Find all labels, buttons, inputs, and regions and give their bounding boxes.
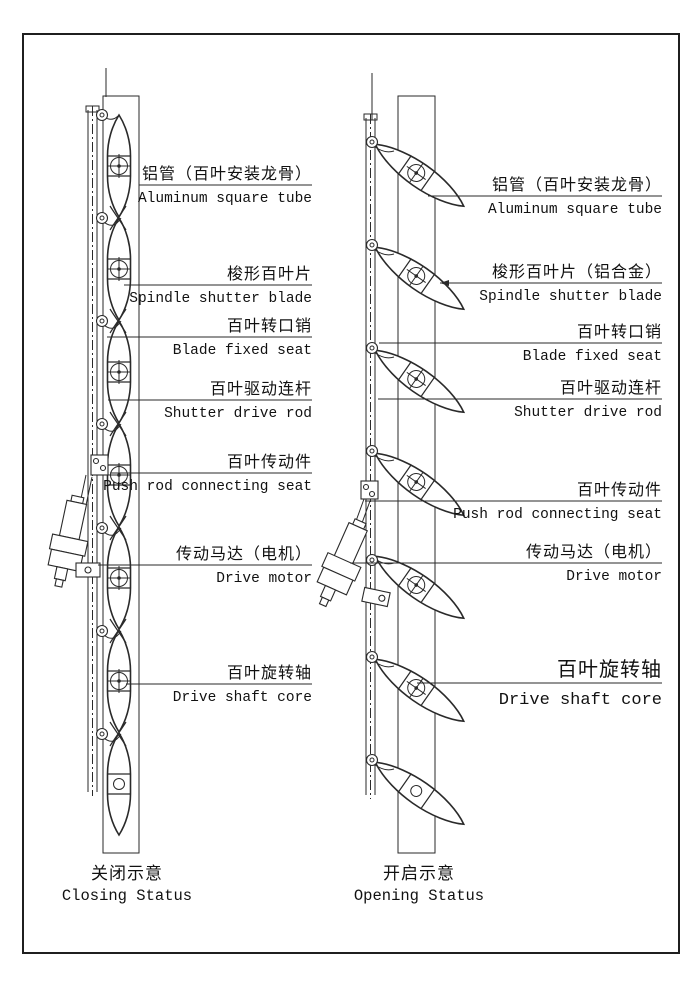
label-aluminum-tube-en: Aluminum square tube bbox=[138, 191, 312, 207]
opening-status-caption-en: Opening Status bbox=[354, 887, 484, 905]
label-drive-motor-en: Drive motor bbox=[216, 571, 312, 587]
label-drive-motor-en: Drive motor bbox=[566, 569, 662, 585]
label-blade-fixed-seat-zh: 百叶转口销 bbox=[227, 316, 312, 335]
spindle-blade bbox=[368, 546, 470, 628]
label-connecting-seat-zh: 百叶传动件 bbox=[227, 452, 312, 471]
label-spindle-blade-zh: 梭形百叶片（铝合金） bbox=[492, 262, 662, 281]
label-spindle-blade-en: Spindle shutter blade bbox=[479, 289, 662, 305]
opening-diagram bbox=[308, 73, 471, 853]
open-blades bbox=[368, 134, 470, 834]
closing-status-caption-zh: 关闭示意 bbox=[91, 864, 163, 884]
label-drive-rod-zh: 百叶驱动连杆 bbox=[210, 379, 312, 398]
shutter-drive-rod bbox=[86, 106, 99, 796]
spindle-blade bbox=[107, 321, 131, 423]
drive-motor-assembly bbox=[42, 455, 108, 590]
label-blade-fixed-seat-en: Blade fixed seat bbox=[523, 349, 662, 365]
blade-pivots bbox=[367, 137, 378, 766]
label-drive-rod-zh: 百叶驱动连杆 bbox=[560, 378, 662, 397]
label-drive-rod-en: Shutter drive rod bbox=[164, 406, 312, 422]
spindle-blade bbox=[107, 424, 131, 526]
spindle-blade bbox=[107, 115, 131, 217]
right-labels: 铝管（百叶安装龙骨） Aluminum square tube 梭形百叶片（铝合… bbox=[453, 175, 662, 710]
label-aluminum-tube-zh: 铝管（百叶安装龙骨） bbox=[492, 175, 662, 194]
spindle-blade bbox=[368, 649, 470, 731]
opening-status-caption-zh: 开启示意 bbox=[383, 864, 455, 884]
left-labels: 铝管（百叶安装龙骨） Aluminum square tube 梭形百叶片 Sp… bbox=[103, 164, 312, 706]
shutter-mechanism-diagram: 铝管（百叶安装龙骨） Aluminum square tube 梭形百叶片 Sp… bbox=[0, 0, 700, 991]
label-shaft-core-zh: 百叶旋转轴 bbox=[227, 663, 312, 682]
label-connecting-seat-en: Push rod connecting seat bbox=[453, 507, 662, 523]
spindle-blade bbox=[107, 218, 131, 320]
spindle-blade bbox=[368, 237, 470, 319]
label-spindle-blade-en: Spindle shutter blade bbox=[129, 291, 312, 307]
spindle-blade bbox=[108, 733, 131, 835]
label-shaft-core-en: Drive shaft core bbox=[173, 690, 312, 706]
spindle-blade bbox=[107, 630, 131, 732]
spindle-blade bbox=[107, 527, 131, 629]
label-blade-fixed-seat-zh: 百叶转口销 bbox=[577, 322, 662, 341]
label-shaft-core-zh: 百叶旋转轴 bbox=[557, 657, 662, 681]
label-drive-rod-en: Shutter drive rod bbox=[514, 405, 662, 421]
captions: 关闭示意 Closing Status 开启示意 Opening Status bbox=[62, 864, 484, 905]
label-blade-fixed-seat-en: Blade fixed seat bbox=[173, 343, 312, 359]
spindle-blade bbox=[368, 752, 470, 834]
blade-pivots bbox=[97, 110, 108, 740]
label-shaft-core-en: Drive shaft core bbox=[499, 691, 662, 710]
spindle-blade bbox=[368, 134, 470, 216]
closing-status-caption-en: Closing Status bbox=[62, 887, 192, 905]
label-aluminum-tube-zh: 铝管（百叶安装龙骨） bbox=[142, 164, 312, 183]
label-spindle-blade-zh: 梭形百叶片 bbox=[227, 264, 312, 283]
label-drive-motor-zh: 传动马达（电机） bbox=[176, 544, 312, 563]
label-drive-motor-zh: 传动马达（电机） bbox=[526, 542, 662, 561]
label-aluminum-tube-en: Aluminum square tube bbox=[488, 202, 662, 218]
label-connecting-seat-zh: 百叶传动件 bbox=[577, 480, 662, 499]
spindle-blade bbox=[368, 340, 470, 422]
label-connecting-seat-en: Push rod connecting seat bbox=[103, 479, 312, 495]
closing-diagram bbox=[42, 68, 139, 853]
